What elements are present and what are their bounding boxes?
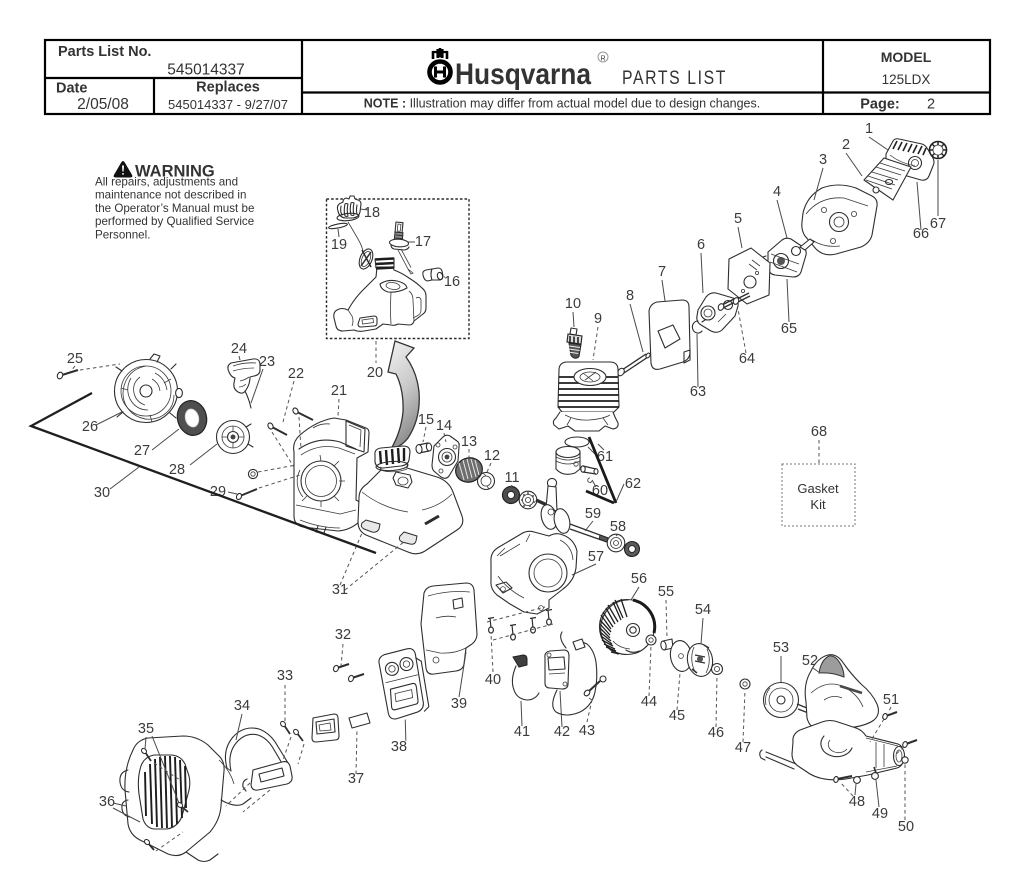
svg-text:15: 15 [418, 412, 434, 428]
svg-text:3: 3 [819, 152, 827, 168]
svg-text:NOTE : Illustration may differ: NOTE : Illustration may differ from actu… [364, 97, 761, 111]
svg-text:Parts List No.: Parts List No. [58, 44, 151, 60]
svg-text:20: 20 [367, 365, 383, 381]
svg-text:50: 50 [898, 819, 914, 835]
svg-text:18: 18 [364, 205, 380, 221]
svg-text:Husqvarna: Husqvarna [455, 58, 591, 91]
svg-text:545014337: 545014337 [167, 62, 245, 79]
svg-text:48: 48 [849, 794, 865, 810]
svg-text:5: 5 [734, 211, 742, 227]
svg-text:125LDX: 125LDX [882, 72, 931, 87]
svg-text:45: 45 [669, 708, 685, 724]
svg-text:10: 10 [565, 296, 581, 312]
svg-text:56: 56 [631, 571, 647, 587]
svg-text:Kit: Kit [810, 497, 826, 512]
svg-text:58: 58 [610, 519, 626, 535]
svg-text:16: 16 [444, 274, 460, 290]
svg-text:26: 26 [82, 419, 98, 435]
svg-text:23: 23 [259, 354, 275, 370]
svg-text:54: 54 [695, 602, 711, 618]
svg-text:57: 57 [588, 549, 604, 565]
svg-text:64: 64 [739, 351, 755, 367]
svg-text:PARTS LIST: PARTS LIST [622, 67, 727, 89]
svg-text:59: 59 [585, 506, 601, 522]
svg-text:47: 47 [735, 740, 751, 756]
svg-text:53: 53 [773, 640, 789, 656]
svg-text:2/05/08: 2/05/08 [77, 96, 129, 113]
svg-text:Gasket: Gasket [797, 481, 839, 496]
svg-text:8: 8 [626, 288, 634, 304]
svg-text:13: 13 [461, 434, 477, 450]
svg-text:46: 46 [708, 725, 724, 741]
svg-text:32: 32 [335, 627, 351, 643]
svg-text:55: 55 [658, 584, 674, 600]
svg-text:44: 44 [641, 694, 657, 710]
svg-text:24: 24 [231, 341, 247, 357]
svg-text:All repairs, adjustments and: All repairs, adjustments and [95, 176, 238, 189]
svg-text:51: 51 [883, 692, 899, 708]
svg-text:11: 11 [504, 470, 519, 486]
svg-text:2: 2 [842, 137, 850, 153]
svg-text:Date: Date [56, 81, 87, 97]
svg-text:12: 12 [484, 448, 500, 464]
svg-text:19: 19 [331, 237, 347, 253]
svg-text:4: 4 [773, 184, 781, 200]
svg-text:maintenance not described in: maintenance not described in [95, 189, 246, 202]
svg-text:7: 7 [658, 264, 666, 280]
svg-text:1: 1 [865, 121, 873, 137]
svg-text:performed by Qualified Service: performed by Qualified Service [95, 215, 254, 228]
svg-text:40: 40 [485, 672, 501, 688]
svg-text:33: 33 [277, 668, 293, 684]
svg-text:17: 17 [415, 234, 431, 250]
svg-text:the Operator’s Manual must be: the Operator’s Manual must be [95, 202, 254, 215]
svg-text:14: 14 [436, 418, 452, 434]
svg-text:Replaces: Replaces [196, 80, 260, 96]
svg-text:65: 65 [781, 321, 797, 337]
svg-text:27: 27 [134, 443, 150, 459]
svg-text:MODEL: MODEL [881, 49, 932, 65]
svg-text:36: 36 [99, 794, 115, 810]
svg-text:21: 21 [331, 383, 347, 399]
svg-text:41: 41 [514, 724, 530, 740]
svg-text:25: 25 [67, 351, 83, 367]
svg-text:R: R [600, 56, 605, 63]
svg-text:9: 9 [594, 311, 602, 327]
svg-text:38: 38 [391, 739, 407, 755]
svg-text:62: 62 [625, 476, 641, 492]
svg-text:34: 34 [234, 698, 250, 714]
svg-text:Personnel.: Personnel. [95, 228, 150, 241]
svg-text:545014337 - 9/27/07: 545014337 - 9/27/07 [168, 97, 288, 112]
svg-text:39: 39 [451, 696, 467, 712]
svg-text:22: 22 [288, 366, 304, 382]
svg-text:2: 2 [927, 97, 935, 113]
svg-text:43: 43 [579, 723, 595, 739]
svg-text:49: 49 [872, 806, 888, 822]
svg-text:68: 68 [811, 424, 827, 440]
svg-text:67: 67 [930, 216, 946, 232]
svg-text:30: 30 [94, 485, 110, 501]
svg-text:35: 35 [138, 721, 154, 737]
svg-text:6: 6 [697, 237, 705, 253]
svg-text:28: 28 [169, 462, 185, 478]
svg-text:Page:: Page: [860, 97, 900, 113]
